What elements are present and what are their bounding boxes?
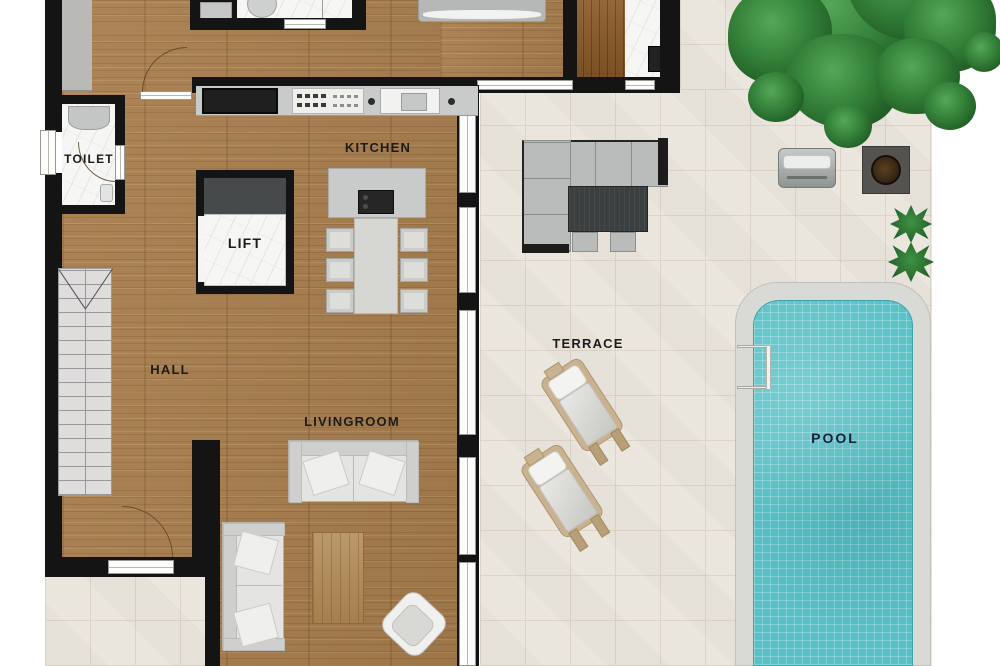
kitchen-panel-buttons	[297, 94, 327, 98]
room-label-toilet: TOILET	[60, 152, 118, 166]
bush	[888, 242, 934, 282]
dining-chair	[326, 228, 354, 252]
sofa-backrest	[223, 523, 237, 651]
toilet-window	[40, 130, 56, 175]
kitchen-panel-dials	[333, 95, 359, 98]
outdoor-sofa-armrest	[522, 244, 569, 253]
entry-paving	[45, 575, 207, 666]
facade-window-3	[459, 310, 476, 435]
tree-foliage	[824, 104, 872, 148]
sofa-cushion	[302, 450, 349, 496]
lift-counterweight	[204, 178, 286, 214]
bedroom-window	[477, 80, 573, 90]
bed	[418, 0, 546, 22]
room-label-lift: LIFT	[205, 235, 285, 251]
staircase	[58, 268, 112, 496]
toilet-washbasin	[68, 106, 110, 130]
outdoor-stool	[610, 232, 636, 252]
outdoor-stool	[572, 232, 598, 252]
lift-shaft	[196, 170, 294, 294]
sofa-backrest	[289, 441, 419, 456]
kitchen-knob-2	[448, 98, 455, 105]
grill-handle	[787, 176, 827, 179]
room-label-pool: POOL	[775, 430, 895, 446]
staircase-direction-line	[85, 268, 113, 308]
kitchen-knob-1	[368, 98, 375, 105]
sauna-bench	[575, 0, 625, 78]
facade-window-2	[459, 207, 476, 293]
toilet-wall-right-lower	[115, 180, 125, 214]
room-label-livingroom: LIVINGROOM	[272, 414, 432, 429]
tree-foliage	[964, 32, 1000, 72]
kitchen-panel-buttons-2	[297, 103, 327, 107]
room-label-kitchen: KITCHEN	[328, 140, 428, 155]
bathroom-vanity	[200, 2, 232, 19]
facade-window-5	[459, 562, 476, 666]
coffee-table	[312, 532, 364, 624]
sofa-seat-divider	[236, 585, 282, 586]
lift-door	[198, 216, 205, 282]
pool-ladder-side	[766, 345, 771, 390]
kitchen-sink	[380, 88, 440, 114]
kitchen-control-panel	[292, 88, 364, 114]
cooktop-burner-1	[363, 195, 368, 200]
tree-foliage	[924, 82, 976, 130]
dining-table	[354, 218, 398, 314]
facade-window-4	[459, 457, 476, 555]
toilet-wall-right-upper	[115, 95, 125, 145]
pool-ladder	[737, 345, 773, 391]
bush	[890, 205, 932, 243]
sofa-armrest	[406, 441, 419, 503]
kitchen-panel-dials-2	[333, 104, 359, 107]
kitchen-stove	[202, 88, 278, 114]
room-label-terrace: TERRACE	[518, 336, 658, 351]
dining-chair	[326, 258, 354, 282]
toilet-wc	[100, 184, 113, 202]
dining-chair	[400, 258, 428, 282]
staircase-direction-line	[58, 269, 86, 309]
floorplan-canvas: TOILET KITCHEN LIFT	[0, 0, 1000, 666]
outdoor-sofa-armrest	[658, 138, 668, 185]
bathroom-wall-bottom	[190, 18, 366, 30]
sofa-armrest	[289, 441, 302, 503]
outdoor-sofa-side	[522, 140, 571, 252]
tree-foliage	[748, 72, 804, 122]
island-cooktop	[358, 190, 394, 214]
dining-chair	[326, 289, 354, 313]
exterior-wall-left-upper	[45, 0, 62, 132]
sofa-seat-divider	[353, 455, 354, 501]
wall-stub-bottom	[205, 577, 220, 666]
sofa-cushion	[233, 531, 279, 576]
dining-chair	[400, 228, 428, 252]
kitchen-sink-basin	[401, 93, 427, 111]
armchair-cushion	[389, 601, 437, 649]
fire-pit-bowl	[871, 155, 901, 185]
staircase-center-line	[85, 269, 86, 495]
sauna-window	[625, 80, 655, 90]
bed-blanket-edge	[423, 10, 541, 19]
dining-chair	[400, 289, 428, 313]
cooktop-burner-2	[363, 204, 368, 209]
outdoor-table	[568, 186, 648, 232]
wardrobe	[62, 0, 92, 92]
hall-door-threshold	[140, 91, 192, 100]
tree	[728, 0, 996, 158]
shower-glass	[322, 0, 323, 20]
pool-water	[753, 300, 913, 666]
bathroom-door-threshold	[284, 19, 326, 29]
sofa-vertical	[222, 522, 284, 650]
room-label-hall: HALL	[130, 362, 210, 377]
sofa-cushion	[358, 450, 405, 496]
entry-door-threshold	[108, 560, 174, 574]
kitchen-counter	[196, 86, 478, 116]
sofa-horizontal	[288, 440, 418, 502]
